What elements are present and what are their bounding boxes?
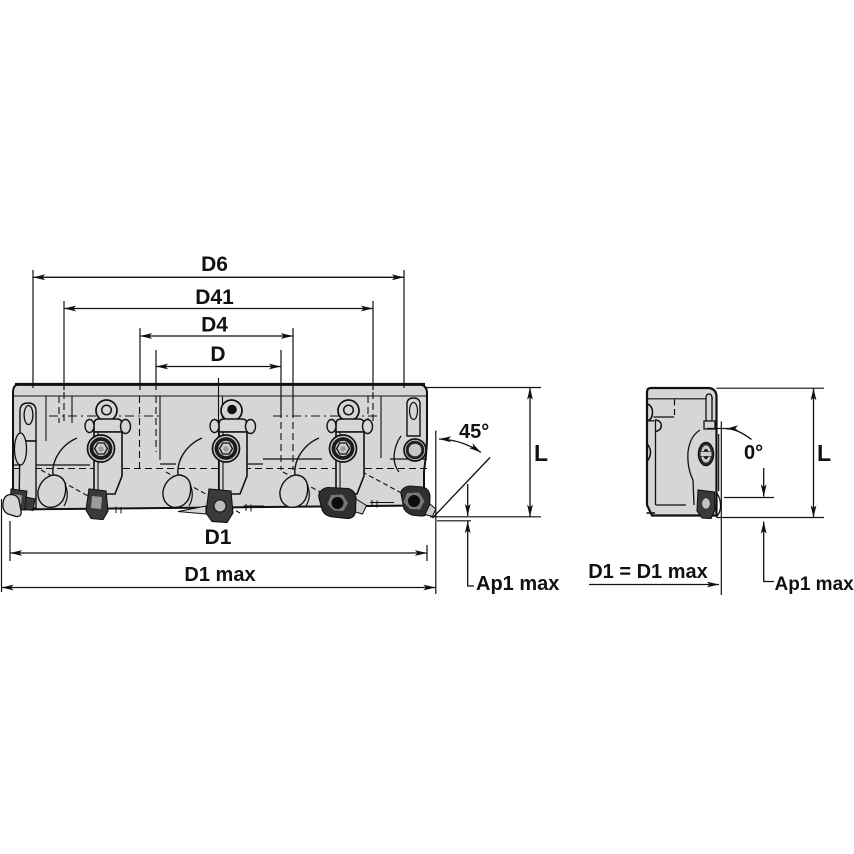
svg-text:D: D (210, 343, 225, 366)
svg-text:45°: 45° (459, 421, 489, 443)
svg-text:L: L (817, 440, 831, 466)
svg-text:Ap1 max: Ap1 max (775, 574, 854, 595)
svg-text:D4: D4 (201, 314, 228, 337)
svg-text:D1 max: D1 max (184, 564, 255, 586)
svg-text:Ap1 max: Ap1 max (476, 573, 559, 595)
svg-text:0°: 0° (744, 442, 763, 464)
svg-text:D1: D1 (205, 526, 232, 549)
svg-text:D41: D41 (195, 286, 234, 309)
svg-text:D6: D6 (201, 253, 228, 276)
svg-text:D1 = D1 max: D1 = D1 max (588, 561, 708, 583)
svg-text:L: L (534, 440, 548, 466)
